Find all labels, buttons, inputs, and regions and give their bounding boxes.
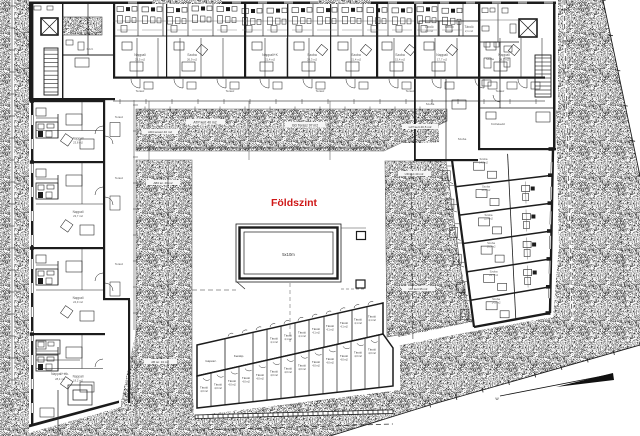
svg-text:26,9 m2: 26,9 m2 <box>187 58 198 62</box>
svg-text:Tároló: Tároló <box>354 351 362 355</box>
svg-text:Terasz: Terasz <box>115 115 124 119</box>
svg-text:Tároló: Tároló <box>200 385 208 389</box>
svg-text:4,1 m2: 4,1 m2 <box>368 319 376 322</box>
svg-text:AB ter. 34 m2: AB ter. 34 m2 <box>151 360 169 364</box>
svg-text:23,7 m2: 23,7 m2 <box>73 214 83 218</box>
svg-text:Terasz: Terasz <box>115 176 124 180</box>
svg-text:Tároló: Tároló <box>368 348 376 352</box>
svg-text:Nappali: Nappali <box>73 375 84 379</box>
svg-text:AB3 ter. 40 m2: AB3 ter. 40 m2 <box>153 181 173 185</box>
svg-text:4,0 m2: 4,0 m2 <box>256 377 264 380</box>
svg-text:Tároló: Tároló <box>256 373 264 377</box>
svg-text:Nappali+K: Nappali+K <box>262 53 278 57</box>
svg-text:Nappali: Nappali <box>436 53 448 57</box>
svg-text:Szoba: Szoba <box>307 53 317 57</box>
svg-text:4,1 m2: 4,1 m2 <box>312 332 320 335</box>
svg-text:Nappali: Nappali <box>134 53 146 57</box>
svg-text:5x10m: 5x10m <box>282 252 295 257</box>
svg-text:4,0 m2: 4,0 m2 <box>354 355 362 358</box>
svg-text:2,1 m2: 2,1 m2 <box>445 29 453 33</box>
svg-text:4,1 m2: 4,1 m2 <box>354 322 362 325</box>
svg-text:14,6 m2: 14,6 m2 <box>479 162 488 165</box>
svg-text:4,0 m2: 4,0 m2 <box>368 352 376 355</box>
svg-text:28,4 m2: 28,4 m2 <box>55 377 65 381</box>
svg-text:4,1 m2: 4,1 m2 <box>284 338 292 341</box>
svg-text:Szoba: Szoba <box>426 102 435 106</box>
svg-text:Szoba: Szoba <box>482 185 490 189</box>
svg-text:LAT kert 40,5 m2: LAT kert 40,5 m2 <box>409 125 432 129</box>
svg-text:21,4 m2: 21,4 m2 <box>351 58 362 62</box>
svg-text:Tároló: Tároló <box>228 379 236 383</box>
svg-text:23,6 m2: 23,6 m2 <box>482 189 491 192</box>
svg-text:Nappali: Nappali <box>73 296 84 300</box>
svg-text:Tároló: Tároló <box>214 382 222 386</box>
svg-text:Földszint: Földszint <box>271 197 318 209</box>
svg-text:4,0 m2: 4,0 m2 <box>312 365 320 368</box>
svg-text:Nappali: Nappali <box>73 137 84 141</box>
svg-text:4,0 m2: 4,0 m2 <box>284 371 292 374</box>
svg-text:Tároló: Tároló <box>340 321 348 325</box>
svg-text:Szoba: Szoba <box>492 297 500 301</box>
svg-text:17,7 m2: 17,7 m2 <box>437 58 448 62</box>
svg-text:Tároló: Tároló <box>284 334 292 338</box>
svg-text:AD3 terasz 40 m2: AD3 terasz 40 m2 <box>148 130 172 134</box>
svg-text:Szoba: Szoba <box>351 53 361 57</box>
svg-text:Tároló: Tároló <box>270 337 278 341</box>
svg-text:Nappali: Nappali <box>73 210 84 214</box>
svg-text:Terasz: Terasz <box>226 89 235 93</box>
svg-text:Nappali+étk.: Nappali+étk. <box>51 372 69 376</box>
svg-text:19,2 m2: 19,2 m2 <box>73 379 83 383</box>
svg-text:4,1 m2: 4,1 m2 <box>326 329 334 332</box>
svg-text:4,1 m2: 4,1 m2 <box>270 341 278 344</box>
svg-text:Szoba: Szoba <box>458 137 467 141</box>
svg-text:Szoba: Szoba <box>485 213 493 217</box>
svg-text:Szoba: Szoba <box>490 269 498 273</box>
svg-text:2,1 m2: 2,1 m2 <box>465 29 473 33</box>
svg-text:19,3 m2: 19,3 m2 <box>487 246 496 249</box>
svg-text:4,0 m2: 4,0 m2 <box>298 368 306 371</box>
svg-text:4,0 m2: 4,0 m2 <box>242 380 250 383</box>
svg-text:Kerékp.: Kerékp. <box>234 354 245 358</box>
svg-text:Szoba: Szoba <box>486 57 494 61</box>
svg-text:Tároló: Tároló <box>444 25 453 29</box>
svg-text:Tároló: Tároló <box>354 318 362 322</box>
svg-text:24,7 m2: 24,7 m2 <box>489 274 498 277</box>
svg-text:Közl.: Közl. <box>87 47 94 51</box>
svg-text:Terasz: Terasz <box>136 89 145 93</box>
svg-text:24,8 m2: 24,8 m2 <box>492 301 501 304</box>
svg-text:Gépész.: Gépész. <box>205 359 216 363</box>
svg-text:Szoba: Szoba <box>187 53 197 57</box>
svg-text:Tároló: Tároló <box>340 354 348 358</box>
svg-text:24,9 m2: 24,9 m2 <box>73 300 83 304</box>
svg-text:UD kert 40 m2: UD kert 40 m2 <box>405 172 424 176</box>
svg-text:2,1 m2: 2,1 m2 <box>425 29 433 33</box>
svg-text:UG kert 35 m2: UG kert 35 m2 <box>409 287 428 291</box>
svg-text:Tároló: Tároló <box>464 25 473 29</box>
svg-text:Terasz: Terasz <box>316 89 325 93</box>
svg-text:Tároló: Tároló <box>298 363 306 367</box>
svg-text:Tároló: Tároló <box>326 357 334 361</box>
svg-text:Tároló: Tároló <box>312 327 320 331</box>
svg-text:Szoba: Szoba <box>395 53 405 57</box>
svg-text:28,3 m2: 28,3 m2 <box>307 58 318 62</box>
svg-text:4,0 m2: 4,0 m2 <box>200 390 208 393</box>
svg-text:Közlekedő: Közlekedő <box>491 122 505 126</box>
svg-text:4,0 m2: 4,0 m2 <box>214 387 222 390</box>
svg-text:4,1 m2: 4,1 m2 <box>298 335 306 338</box>
svg-text:4,0 m2: 4,0 m2 <box>228 384 236 387</box>
svg-text:4,0 m2: 4,0 m2 <box>340 358 348 361</box>
svg-text:Tároló: Tároló <box>270 370 278 374</box>
svg-text:Tároló: Tároló <box>424 25 433 29</box>
svg-text:ATP kert 40 m2: ATP kert 40 m2 <box>193 121 216 125</box>
svg-text:Tároló: Tároló <box>312 360 320 364</box>
svg-text:4,0 m2: 4,0 m2 <box>326 362 334 365</box>
svg-text:Szoba: Szoba <box>480 157 488 161</box>
svg-text:Tároló: Tároló <box>368 315 376 319</box>
svg-text:Tároló: Tároló <box>284 367 292 371</box>
svg-text:Terasz: Terasz <box>406 89 415 93</box>
svg-text:22,4 m2: 22,4 m2 <box>484 217 493 220</box>
svg-text:21,4 m2: 21,4 m2 <box>265 58 276 62</box>
svg-text:23,5 m2: 23,5 m2 <box>135 58 146 62</box>
svg-text:Tároló: Tároló <box>326 324 334 328</box>
svg-text:Tároló: Tároló <box>242 376 250 380</box>
svg-text:15,4 m2: 15,4 m2 <box>395 58 406 62</box>
svg-text:Terasz: Terasz <box>115 262 124 266</box>
svg-text:4,1 m2: 4,1 m2 <box>340 325 348 328</box>
svg-text:4,0 m2: 4,0 m2 <box>270 374 278 377</box>
svg-text:23,8 m2: 23,8 m2 <box>73 141 83 145</box>
svg-text:Tároló: Tároló <box>298 330 306 334</box>
svg-text:Szoba: Szoba <box>487 241 495 245</box>
svg-text:GD Terasz 97 m2: GD Terasz 97 m2 <box>292 124 318 128</box>
